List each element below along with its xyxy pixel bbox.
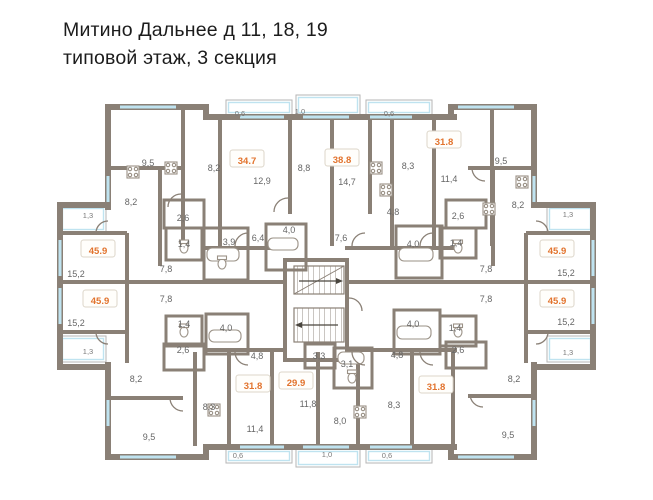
room-area-label: 11,4 bbox=[247, 424, 264, 434]
door-arc bbox=[349, 298, 362, 311]
wall-segment bbox=[410, 352, 414, 444]
window-segment bbox=[370, 446, 412, 449]
wall-segment bbox=[57, 202, 111, 208]
room-area-label: 14,7 bbox=[338, 177, 356, 187]
dimension-label: 1,3 bbox=[83, 211, 93, 220]
wall-segment bbox=[63, 330, 127, 334]
stove-icon bbox=[354, 406, 366, 418]
window-segment bbox=[303, 116, 349, 119]
room-area-label: 8,2 bbox=[512, 200, 525, 210]
dimension-label: 0,6 bbox=[382, 451, 392, 460]
wall-segment bbox=[193, 352, 197, 446]
door-arc bbox=[352, 233, 365, 246]
floor-plan-page: Митино Дальнее д 11, 18, 19 типовой этаж… bbox=[0, 0, 653, 500]
wall-segment bbox=[285, 258, 347, 262]
room-area-label: 8,0 bbox=[334, 416, 347, 426]
room-area-label: 7,6 bbox=[335, 233, 348, 243]
room-area-label: 1,4 bbox=[178, 319, 191, 329]
bathtub-icon bbox=[268, 238, 298, 250]
room-area-label: 4,0 bbox=[283, 225, 296, 235]
wall-segment bbox=[345, 258, 349, 362]
wall-segment bbox=[526, 330, 590, 334]
wall-segment bbox=[125, 233, 129, 363]
room-area-label: 11,4 bbox=[441, 174, 458, 184]
room-area-label: 11,8 bbox=[300, 399, 317, 409]
room-area-label: 6,4 bbox=[252, 233, 265, 243]
dimension-label: 0,6 bbox=[235, 109, 245, 118]
room-area-label: 15,2 bbox=[67, 318, 85, 328]
apartment-area-label: 45.9 bbox=[89, 246, 108, 257]
staircase bbox=[294, 266, 344, 342]
wall-segment bbox=[57, 364, 111, 370]
room-area-label: 4,0 bbox=[407, 319, 420, 329]
stove-icon bbox=[127, 166, 139, 178]
wall-segment bbox=[524, 233, 528, 363]
apartment-area-label: 38.8 bbox=[333, 155, 352, 166]
room-area-label: 4,8 bbox=[251, 351, 264, 361]
toilet-icon bbox=[348, 370, 357, 383]
room-area-label: 7,8 bbox=[480, 264, 493, 274]
room-area-label: 4,0 bbox=[407, 239, 420, 249]
stove-icon bbox=[165, 162, 177, 174]
room-area-label: 8,2 bbox=[208, 163, 221, 173]
wall-segment bbox=[531, 364, 595, 370]
door-arc bbox=[274, 198, 288, 212]
room-area-label: 1,4 bbox=[450, 238, 463, 248]
room-area-label: 12,9 bbox=[253, 176, 271, 186]
apartment-area-label: 31.8 bbox=[244, 381, 263, 392]
dimension-label: 1,3 bbox=[563, 210, 573, 219]
wall-segment bbox=[111, 396, 183, 400]
stove-icon bbox=[483, 203, 495, 215]
wall-segment bbox=[203, 104, 209, 120]
dimension-label: 1,3 bbox=[563, 348, 573, 357]
room-area-label: 9,5 bbox=[495, 156, 508, 166]
bathtub-icon bbox=[399, 248, 433, 261]
wall-segment bbox=[270, 352, 274, 444]
room-area-label: 7,8 bbox=[160, 264, 173, 274]
window-segment bbox=[240, 116, 284, 119]
room-area-label: 2,6 bbox=[177, 345, 190, 355]
apartment-area-label: 34.7 bbox=[238, 156, 257, 167]
apartment-area-label: 45.9 bbox=[548, 246, 567, 257]
stove-icon bbox=[370, 162, 382, 174]
room-area-label: 9,5 bbox=[143, 432, 156, 442]
floor-plan-svg: 34.738.831.845.945.945.945.931.829.931.8… bbox=[0, 0, 653, 500]
wall-segment bbox=[158, 168, 162, 266]
window-segment bbox=[107, 176, 110, 202]
door-arc bbox=[420, 233, 433, 246]
door-arc bbox=[235, 233, 248, 246]
wall-segment bbox=[356, 352, 360, 444]
wall-segment bbox=[348, 280, 593, 284]
room-area-label: 4,8 bbox=[387, 207, 400, 217]
room-area-label: 2,6 bbox=[452, 211, 465, 221]
room-area-label: 7,8 bbox=[160, 294, 173, 304]
room-area-label: 8,2 bbox=[508, 374, 521, 384]
wall-segment bbox=[531, 202, 595, 208]
toilet-icon bbox=[218, 256, 227, 269]
window-segment bbox=[303, 446, 349, 449]
room-area-label: 8,3 bbox=[203, 402, 216, 412]
window-segment bbox=[533, 176, 536, 202]
window-segment bbox=[533, 400, 536, 426]
dimension-label: 1,3 bbox=[83, 347, 93, 356]
wall-segment bbox=[451, 352, 455, 446]
apartment-area-label: 31.8 bbox=[427, 382, 446, 393]
dimension-label: 1,0 bbox=[295, 107, 305, 116]
wall-segment bbox=[448, 104, 454, 120]
window-segment bbox=[458, 456, 514, 459]
room-area-label: 4,8 bbox=[391, 350, 404, 360]
room-area-label: 9,5 bbox=[502, 430, 515, 440]
window-segment bbox=[592, 240, 595, 276]
apartment-area-label: 29.9 bbox=[287, 378, 306, 389]
apartment-area-label: 45.9 bbox=[548, 296, 567, 307]
window-segment bbox=[240, 446, 284, 449]
room-area-label: 15,2 bbox=[67, 269, 85, 279]
wall-segment bbox=[390, 118, 394, 246]
wall-segment bbox=[63, 231, 127, 235]
dimension-label: 0,6 bbox=[233, 451, 243, 460]
room-area-label: 3,1 bbox=[341, 359, 354, 369]
wall-segment bbox=[227, 352, 231, 444]
room-area-label: 8,3 bbox=[388, 400, 401, 410]
room-area-label: 8,8 bbox=[298, 163, 311, 173]
room-area-label: 1,4 bbox=[449, 323, 462, 333]
wall-segment bbox=[63, 280, 285, 284]
wall-segment bbox=[57, 202, 63, 370]
window-segment bbox=[107, 400, 110, 426]
room-area-label: 3,3 bbox=[313, 351, 326, 361]
room-area-label: 4,0 bbox=[220, 323, 233, 333]
wall-segment bbox=[203, 444, 209, 460]
wall-segment bbox=[590, 202, 596, 370]
window-segment bbox=[458, 106, 514, 109]
room-area-label: 8,2 bbox=[130, 374, 143, 384]
room-area-label: 2,6 bbox=[177, 213, 190, 223]
wall-segment bbox=[316, 352, 320, 444]
room-area-label: 7,8 bbox=[480, 294, 493, 304]
dimension-label: 0,6 bbox=[384, 109, 394, 118]
stove-icon bbox=[380, 184, 392, 196]
window-segment bbox=[59, 240, 62, 276]
window-segment bbox=[592, 288, 595, 324]
apartment-area-label: 31.8 bbox=[435, 137, 454, 148]
wall-segment bbox=[330, 118, 334, 246]
wall-segment bbox=[491, 168, 495, 266]
stove-icon bbox=[516, 176, 528, 188]
wall-segment bbox=[288, 118, 292, 214]
room-area-label: 15,2 bbox=[557, 268, 575, 278]
wall-segment bbox=[203, 348, 285, 352]
room-area-label: 9,5 bbox=[142, 158, 155, 168]
room-area-label: 8,2 bbox=[125, 197, 138, 207]
window-segment bbox=[120, 106, 176, 109]
apartment-area-label: 45.9 bbox=[91, 296, 110, 307]
room-area-label: 8,3 bbox=[402, 161, 415, 171]
dimension-label: 1,0 bbox=[322, 450, 332, 459]
wall-segment bbox=[448, 444, 454, 460]
wall-segment bbox=[526, 231, 590, 235]
room-area-label: 3,9 bbox=[223, 237, 236, 247]
window-segment bbox=[59, 288, 62, 324]
wall-segment bbox=[468, 166, 531, 170]
room-area-label: 1,4 bbox=[178, 239, 191, 249]
window-segment bbox=[120, 456, 176, 459]
wall-segment bbox=[181, 104, 185, 246]
wall-segment bbox=[468, 394, 531, 398]
room-area-label: 15,2 bbox=[557, 317, 575, 327]
wall-segment bbox=[283, 258, 287, 362]
room-area-label: 2,6 bbox=[452, 345, 465, 355]
